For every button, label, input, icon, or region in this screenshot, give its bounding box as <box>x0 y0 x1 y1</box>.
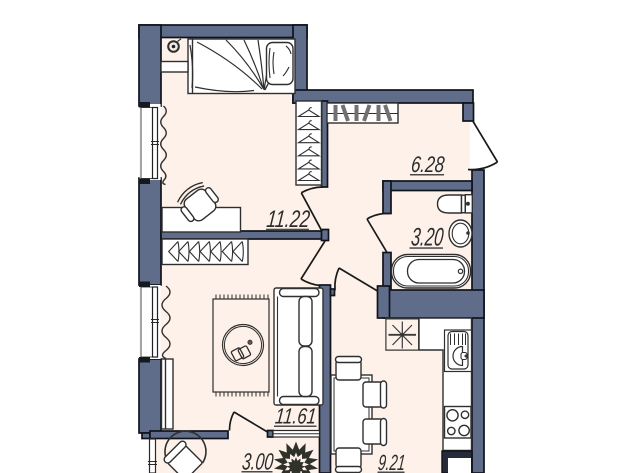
svg-text:3.20: 3.20 <box>410 224 445 252</box>
svg-text:3.00: 3.00 <box>241 449 275 473</box>
svg-text:6.28: 6.28 <box>410 152 446 177</box>
svg-text:11.61: 11.61 <box>274 404 318 429</box>
svg-text:9.21: 9.21 <box>377 450 407 473</box>
